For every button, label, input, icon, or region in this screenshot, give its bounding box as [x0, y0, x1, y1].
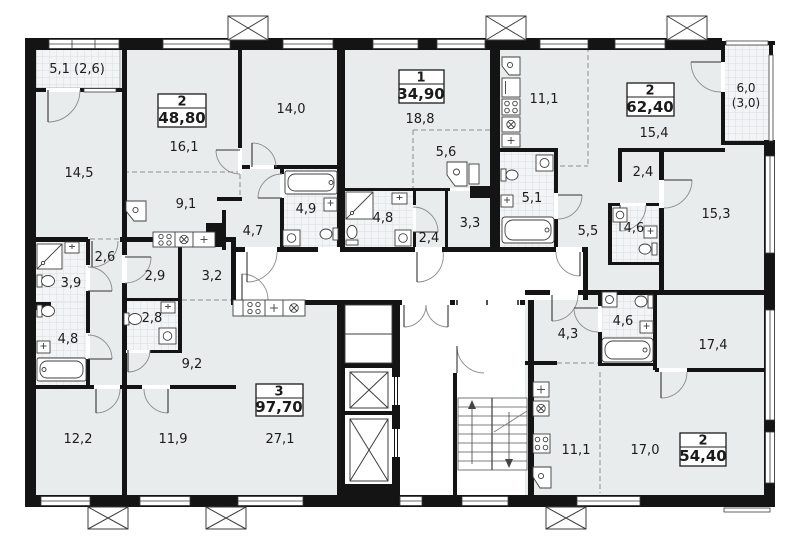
vent-box-icon	[486, 16, 526, 40]
washer-icon	[159, 328, 176, 344]
apartment-rooms-count: 1	[416, 71, 425, 86]
elevator-2-icon	[350, 419, 388, 481]
washer-icon	[613, 208, 627, 222]
washer-icon	[283, 230, 300, 246]
washer-icon	[602, 292, 617, 307]
sink-icon	[161, 302, 175, 313]
vent-box-icon	[546, 507, 586, 529]
sink-icon	[501, 195, 513, 207]
toilet-icon	[501, 169, 518, 181]
room-label-balcony-right-1: 6,0	[736, 81, 755, 95]
toilet-icon	[639, 243, 657, 255]
toilet-icon	[635, 295, 653, 308]
room-label-4-7: 4,7	[243, 224, 264, 239]
room-label-4-6-b: 4,6	[613, 314, 634, 329]
kitchen-counter-icon	[233, 300, 305, 316]
apartment-area: 48,80	[158, 109, 205, 127]
room-label-16-1: 16,1	[170, 140, 199, 155]
room-label-9-2: 9,2	[182, 357, 203, 372]
kitchen-counter-icon	[153, 232, 215, 247]
stove-icon	[533, 434, 550, 453]
apartment-rooms-count: 2	[645, 84, 654, 99]
room-label-5-1-bath: 5,1	[522, 191, 543, 206]
room-label-4-6: 4,6	[624, 221, 645, 236]
room-label-4-8-b: 4,8	[58, 332, 79, 347]
room-label-4-9: 4,9	[296, 202, 317, 217]
room-label-3-3: 3,3	[460, 216, 481, 231]
washer-icon	[395, 230, 411, 246]
room-label-14-0: 14,0	[277, 102, 306, 117]
room-label-3-2: 3,2	[202, 269, 223, 284]
toilet-icon	[124, 313, 142, 325]
toilet-icon	[37, 275, 55, 287]
bathtub-icon	[37, 358, 86, 381]
room-label-2-4-hall: 2,4	[633, 165, 654, 180]
floor-plan-page: 5,1 (2,6) 14,5 16,1 9,1 4,7 14,0 4,9 18,…	[0, 0, 800, 546]
apartment-info-box: 2 62,40	[626, 83, 674, 116]
room-label-2-9: 2,9	[145, 269, 166, 284]
room-label-balcony-right-2: (3,0)	[732, 96, 760, 110]
vent-box-icon	[88, 507, 128, 529]
sink-icon	[65, 242, 79, 253]
stove-icon	[502, 99, 520, 115]
room-label-3-9: 3,9	[61, 276, 82, 291]
room-label-12-2: 12,2	[64, 432, 93, 447]
sink-icon	[37, 341, 50, 353]
washer-icon	[536, 155, 553, 171]
toilet-icon	[346, 226, 358, 246]
cabinet-icon	[533, 382, 549, 397]
apartment-rooms-count: 2	[177, 95, 186, 110]
room-label-2-4: 2,4	[419, 231, 440, 246]
room-label-27-1: 27,1	[266, 432, 295, 447]
shower-tray-icon	[37, 244, 62, 269]
kitchen-sink-icon	[533, 401, 549, 416]
room-label-2-8: 2,8	[142, 311, 163, 326]
sink-icon	[392, 193, 407, 204]
cabinet-icon	[502, 134, 520, 147]
apartment-area: 62,40	[626, 98, 673, 116]
bathtub-icon	[285, 171, 337, 194]
room-label-5-6: 5,6	[436, 145, 457, 160]
vent-box-icon	[228, 16, 268, 40]
room-label-15-3: 15,3	[702, 207, 731, 222]
cabinet-icon	[469, 164, 479, 184]
apartment-area: 34,90	[397, 85, 444, 103]
kitchen-sink-icon	[502, 117, 520, 132]
toilet-icon	[320, 228, 338, 240]
room-label-17-0: 17,0	[631, 443, 660, 458]
shower-tray-icon	[346, 192, 373, 219]
room-label-5-5: 5,5	[578, 224, 599, 239]
room-label-9-1: 9,1	[176, 197, 197, 212]
room-label-4-8: 4,8	[373, 211, 394, 226]
apartment-info-box: 2 48,80	[158, 94, 206, 127]
room-label-2-6: 2,6	[95, 250, 116, 265]
vent-box-icon	[206, 507, 246, 529]
sink-icon	[644, 226, 657, 238]
room-label-18-8: 18,8	[406, 112, 435, 127]
toilet-icon	[37, 305, 55, 317]
apartment-area: 54,40	[679, 447, 726, 465]
sink-icon	[324, 198, 337, 211]
staircase	[458, 398, 527, 470]
elevator-1-icon	[350, 372, 388, 408]
vent-box-icon	[667, 16, 707, 40]
room-label-15-4: 15,4	[640, 126, 669, 141]
room-label-14-5: 14,5	[65, 166, 94, 181]
room-label-17-4: 17,4	[699, 338, 728, 353]
room-label-11-1-top: 11,1	[530, 92, 559, 107]
fridge-icon	[502, 78, 520, 97]
floor-plan-canvas: 5,1 (2,6) 14,5 16,1 9,1 4,7 14,0 4,9 18,…	[0, 0, 800, 546]
room-label-11-9: 11,9	[159, 432, 188, 447]
apartment-info-box: 3 97,70	[255, 384, 303, 416]
room-label-11-1-bottom: 11,1	[562, 443, 591, 458]
room-label-balcony-left: 5,1 (2,6)	[49, 62, 105, 77]
apartment-info-box: 2 54,40	[679, 433, 726, 466]
apartment-area: 97,70	[255, 398, 302, 416]
sink-icon	[640, 321, 653, 333]
bathtub-icon	[502, 217, 554, 243]
bathtub-icon	[602, 338, 653, 362]
apartment-info-box: 1 34,90	[397, 70, 444, 103]
room-label-4-3: 4,3	[558, 327, 579, 342]
